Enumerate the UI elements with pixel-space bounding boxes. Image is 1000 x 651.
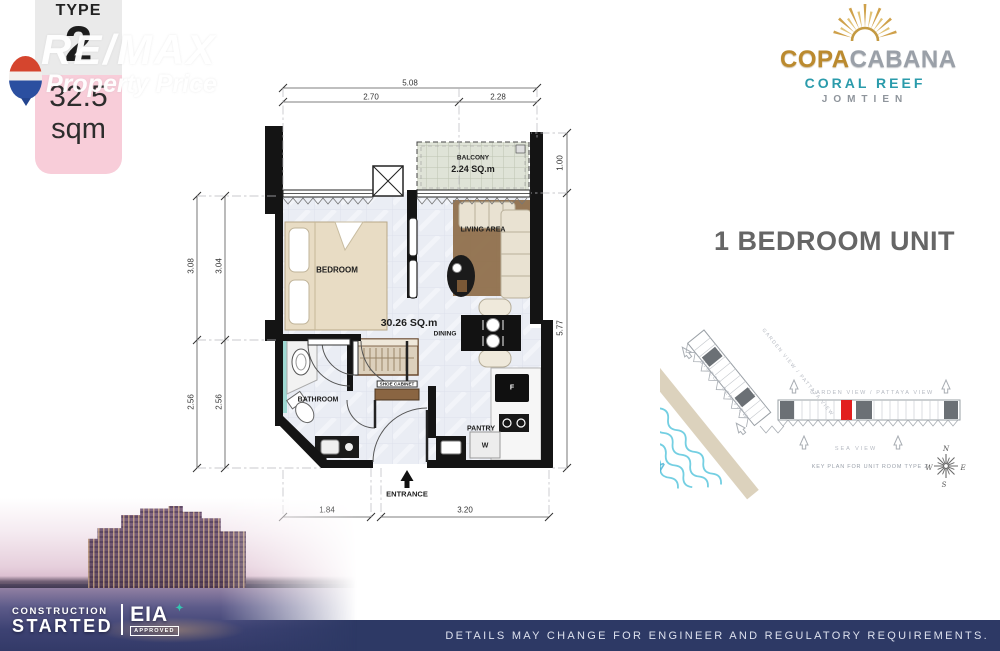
balcony-area-label: 2.24 SQ.m: [451, 164, 495, 174]
compass-rose-icon: N E S W: [925, 445, 965, 489]
view-arrow-icon: [800, 436, 808, 449]
dim-right-upper: 1.00: [556, 155, 565, 171]
building-photo: CONSTRUCTION STARTED EIA✦ APPROVED: [0, 498, 368, 651]
eia-spark-icon: ✦: [175, 599, 184, 618]
view-arrow-icon: [942, 380, 950, 393]
entrance-label: ENTRANCE: [386, 490, 428, 499]
dim-right-lower: 5.77: [556, 320, 565, 336]
view-arrow-icon: [790, 380, 798, 393]
fridge-label: F: [510, 385, 514, 392]
compass-west: W: [925, 464, 933, 472]
living-area-label: LIVING AREA: [461, 227, 506, 234]
compass-south: S: [942, 481, 947, 489]
remax-balloon-icon: [9, 56, 42, 99]
bathroom-label: BATHROOM: [298, 397, 339, 404]
flyer-canvas: RE/MAX Property Price TYPE 2 32.5 sqm: [0, 0, 1000, 651]
shower-glass: [283, 341, 287, 413]
compass-east: E: [959, 464, 965, 472]
eia-label: EIA✦: [130, 605, 178, 624]
status-divider: [121, 604, 123, 635]
disclaimer-text: DETAILS MAY CHANGE FOR ENGINEER AND REGU…: [445, 630, 989, 642]
keyplan-caption: KEY PLAN FOR UNIT ROOM TYPE 2: [812, 464, 928, 470]
pantry-label: PANTRY: [467, 426, 495, 433]
eia-approved-label: APPROVED: [130, 626, 178, 636]
project-logo: COPACABANA CORAL REEF JOMTIEN: [780, 2, 950, 105]
keyplan: SEA: [660, 326, 990, 514]
project-location: JOMTIEN: [780, 94, 950, 105]
dim-bottom-right: 3.20: [457, 506, 473, 515]
shoe-cabinet: [375, 389, 419, 400]
compass-north: N: [942, 445, 950, 453]
balcony-label: BALCONY: [457, 155, 489, 162]
dim-left-inner-upper: 3.04: [215, 258, 224, 274]
building-wing-horizontal: [760, 400, 960, 433]
view-arrow-icon: [894, 436, 902, 449]
garden-view-horizontal-label: GARDEN VIEW / PATTAYA VIEW: [810, 390, 934, 396]
dim-top-total: 5.08: [402, 79, 418, 88]
highlighted-unit: [841, 400, 852, 420]
unit-area-label: 30.26 SQ.m: [381, 317, 438, 329]
sea-view-label: SEA VIEW: [835, 446, 877, 452]
watermark-office: Property Price: [46, 70, 217, 99]
view-arrow-icon: [733, 421, 747, 436]
dim-left-outer-lower: 2.56: [187, 394, 196, 410]
dim-left-inner-lower: 2.56: [215, 394, 224, 410]
balcony-drain-icon: [516, 145, 525, 153]
dim-left-outer-upper: 3.08: [187, 258, 196, 274]
entrance-arrow-icon: [401, 470, 414, 488]
unit-title: 1 BEDROOM UNIT: [714, 226, 955, 257]
project-name-part2: CABANA: [850, 46, 957, 73]
watermark-brand: RE/MAX: [41, 26, 216, 74]
dim-top-left: 2.70: [363, 93, 379, 102]
started-label: STARTED: [12, 617, 113, 636]
floorplan: BALCONY 2.24 SQ.m BEDROOM LIVING AREA 30…: [185, 80, 605, 555]
project-name-part1: COPA: [780, 46, 850, 73]
shoe-cabinet-label: SHOE CABINET: [377, 381, 418, 388]
living-furniture: [447, 200, 531, 298]
construction-status: CONSTRUCTION STARTED EIA✦ APPROVED: [12, 604, 179, 636]
wardrobe: [356, 339, 418, 375]
badge-area-unit: sqm: [35, 113, 122, 145]
dining-label: DINING: [434, 331, 457, 338]
project-name: COPACABANA: [780, 47, 950, 73]
washer-label: W: [482, 443, 489, 450]
sun-rays-icon: [809, 2, 921, 42]
bedroom-label: BEDROOM: [316, 266, 358, 275]
dim-top-right: 2.28: [490, 93, 506, 102]
project-subtitle: CORAL REEF: [780, 75, 950, 91]
bed: [285, 222, 387, 330]
